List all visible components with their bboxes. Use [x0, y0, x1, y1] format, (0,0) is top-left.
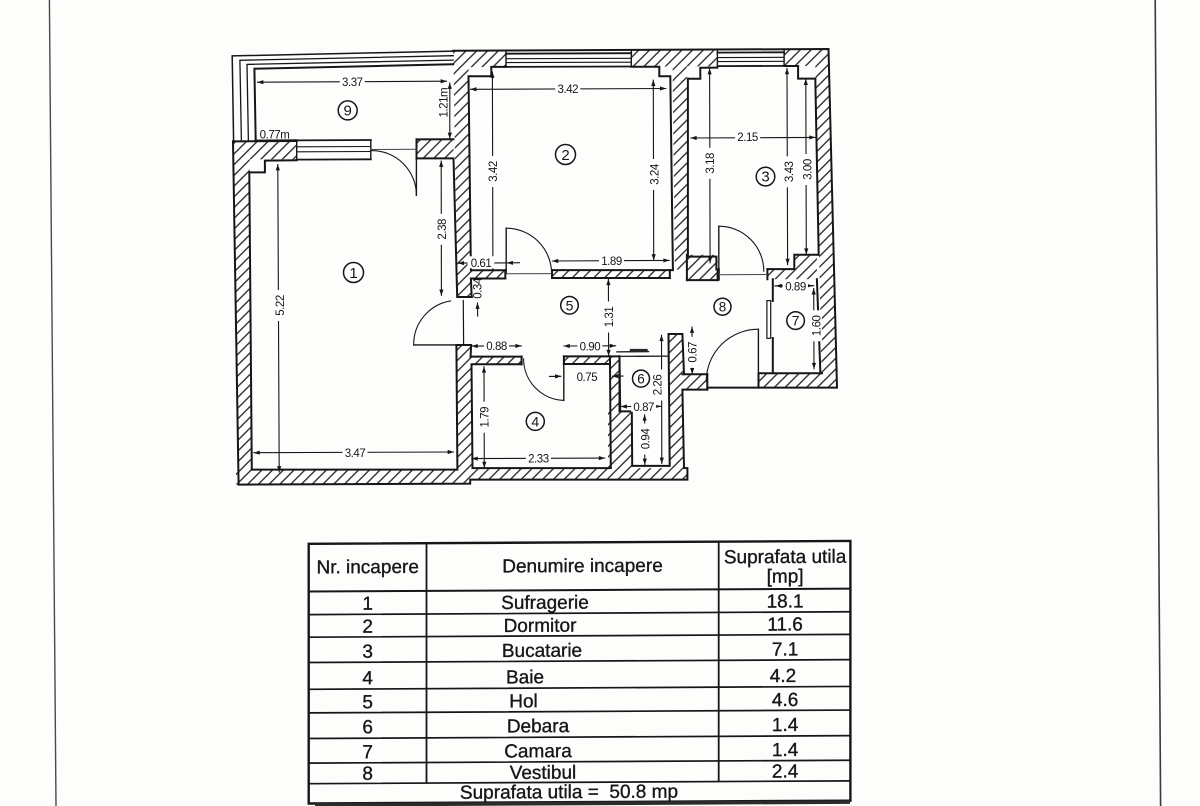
svg-text:5: 5 [362, 692, 373, 713]
svg-text:3.18: 3.18 [705, 153, 717, 174]
svg-text:9: 9 [344, 103, 352, 120]
svg-text:Vestibul: Vestibul [510, 763, 577, 784]
svg-text:1.4: 1.4 [772, 740, 799, 761]
svg-text:2: 2 [561, 147, 569, 164]
svg-text:0.90: 0.90 [580, 341, 601, 353]
svg-text:0.88: 0.88 [486, 341, 507, 353]
svg-text:Debara: Debara [507, 716, 570, 737]
svg-text:0.77m: 0.77m [260, 130, 290, 142]
svg-text:4.6: 4.6 [772, 690, 798, 711]
svg-text:3.42: 3.42 [488, 161, 500, 182]
svg-text:8: 8 [362, 764, 373, 785]
svg-text:1.4: 1.4 [772, 715, 799, 736]
svg-text:5.22: 5.22 [275, 295, 287, 316]
svg-text:Camara: Camara [504, 741, 572, 762]
svg-text:2.4: 2.4 [772, 761, 799, 782]
svg-text:[mp]: [mp] [767, 566, 804, 587]
svg-text:0.87: 0.87 [633, 402, 654, 414]
svg-text:3.24: 3.24 [649, 163, 661, 185]
svg-text:2.15: 2.15 [737, 132, 758, 144]
svg-text:4.2: 4.2 [770, 666, 796, 687]
svg-text:7: 7 [362, 742, 373, 763]
svg-text:3.37: 3.37 [342, 77, 363, 89]
svg-text:1.31: 1.31 [604, 307, 616, 328]
svg-text:1: 1 [349, 265, 357, 282]
svg-text:7.1: 7.1 [772, 639, 798, 660]
svg-text:0.34: 0.34 [472, 277, 484, 299]
svg-text:Sufragerie: Sufragerie [501, 593, 589, 614]
svg-text:6: 6 [637, 371, 645, 386]
svg-text:18.1: 18.1 [767, 591, 804, 612]
svg-text:0.67: 0.67 [687, 342, 699, 363]
svg-text:5: 5 [566, 297, 574, 313]
svg-text:Hol: Hol [509, 691, 538, 712]
svg-text:Dormitor: Dormitor [504, 616, 578, 637]
svg-text:2: 2 [362, 617, 373, 638]
svg-text:Suprafata utila = 50.8 mp: Suprafata utila = 50.8 mp [460, 782, 678, 804]
svg-text:0.89: 0.89 [785, 282, 806, 294]
svg-text:Suprafata utila: Suprafata utila [724, 547, 847, 569]
svg-text:Baie: Baie [506, 667, 544, 688]
svg-text:Bucatarie: Bucatarie [502, 641, 582, 662]
svg-text:3.43: 3.43 [784, 161, 796, 182]
svg-text:3.47: 3.47 [345, 448, 366, 460]
svg-text:3.42: 3.42 [558, 84, 579, 96]
svg-text:2.38: 2.38 [437, 219, 449, 240]
svg-text:0.61: 0.61 [471, 258, 492, 270]
svg-text:6: 6 [362, 717, 373, 738]
svg-text:3: 3 [761, 169, 769, 186]
svg-text:0.75: 0.75 [577, 372, 598, 384]
svg-text:7: 7 [792, 313, 800, 329]
svg-text:3.00: 3.00 [803, 159, 815, 180]
svg-text:11.6: 11.6 [767, 614, 803, 635]
svg-text:1.79: 1.79 [480, 407, 492, 428]
svg-text:Denumire incapere: Denumire incapere [502, 556, 663, 578]
svg-text:0.94: 0.94 [641, 428, 653, 450]
svg-text:4: 4 [531, 413, 539, 429]
svg-text:1.89: 1.89 [601, 256, 622, 268]
svg-text:1.21m: 1.21m [439, 88, 451, 118]
svg-text:3: 3 [362, 642, 373, 663]
svg-text:2.26: 2.26 [652, 375, 664, 396]
svg-text:1: 1 [362, 594, 373, 615]
svg-text:Nr. incapere: Nr. incapere [316, 557, 418, 579]
svg-text:8: 8 [719, 300, 727, 315]
svg-text:4: 4 [362, 668, 373, 689]
svg-text:2.33: 2.33 [528, 453, 549, 465]
svg-text:1.60: 1.60 [812, 315, 824, 336]
